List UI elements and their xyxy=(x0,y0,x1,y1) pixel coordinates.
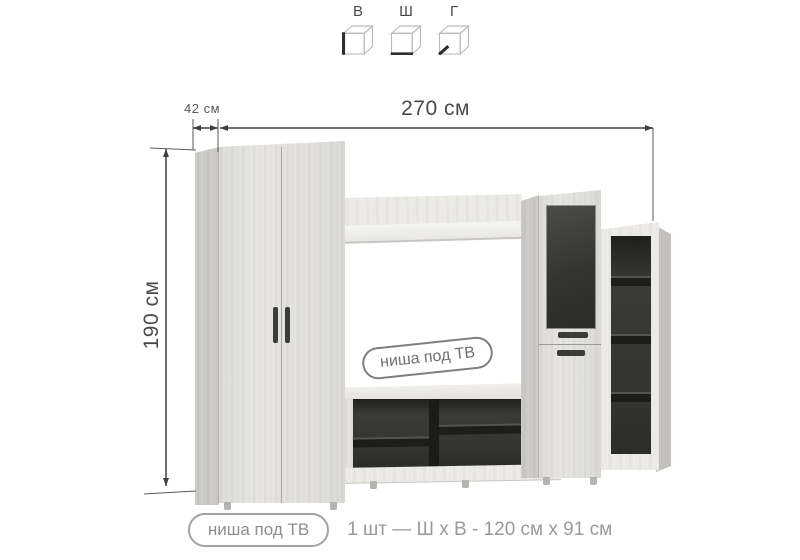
dimension-legend: В Ш Г xyxy=(340,3,472,55)
legend-height: В xyxy=(340,3,376,55)
caption-niche-pill: ниша под ТВ xyxy=(188,513,329,547)
cabinet-door-divider xyxy=(539,344,601,345)
legend-width: Ш xyxy=(388,3,424,55)
furniture-diagram: В Ш Г xyxy=(0,0,800,560)
legend-depth-label: Г xyxy=(450,3,458,20)
wardrobe-side-panel xyxy=(195,147,219,505)
cube-width-icon xyxy=(388,24,424,55)
cabinet-front xyxy=(538,190,601,478)
cabinet-foot xyxy=(590,477,597,485)
legend-height-label: В xyxy=(353,3,363,20)
tv-stand-foot xyxy=(462,480,469,488)
dimension-height-label: 190 см xyxy=(140,255,164,375)
dimension-depth-label: 42 см xyxy=(184,101,220,116)
wardrobe-handle-right xyxy=(285,307,290,343)
cabinet-foot xyxy=(543,477,550,485)
tv-stand-divider xyxy=(429,399,439,468)
shelf-unit-shelf xyxy=(611,276,651,286)
cube-depth-icon xyxy=(436,24,472,55)
wardrobe-handle-left xyxy=(273,307,278,343)
caption-spec-text: 1 шт — Ш х В - 120 см х 91 см xyxy=(347,519,612,541)
tv-stand-interior xyxy=(353,399,537,468)
cabinet-handle-bottom xyxy=(557,350,585,356)
shelf-unit-shelf xyxy=(611,334,651,344)
wardrobe-door-split xyxy=(281,147,282,503)
tv-stand-shelf-left xyxy=(353,436,429,447)
dimension-width-label: 270 см xyxy=(218,97,653,121)
wardrobe-foot xyxy=(224,502,231,510)
legend-width-label: Ш xyxy=(399,3,413,20)
shelf-unit-shelf xyxy=(611,392,651,402)
tv-niche-label: ниша под ТВ xyxy=(361,335,495,381)
cabinet-handle-top xyxy=(558,332,588,338)
cube-height-icon xyxy=(340,24,376,55)
shelf-unit-interior xyxy=(611,236,651,454)
wardrobe-foot xyxy=(330,502,337,510)
legend-depth: Г xyxy=(436,3,472,55)
tv-stand-foot xyxy=(370,481,377,489)
cabinet-side-panel xyxy=(521,195,539,478)
caption-row: ниша под ТВ 1 шт — Ш х В - 120 см х 91 с… xyxy=(0,513,800,547)
wardrobe-front xyxy=(218,141,345,503)
cabinet-glass-door xyxy=(546,205,596,329)
